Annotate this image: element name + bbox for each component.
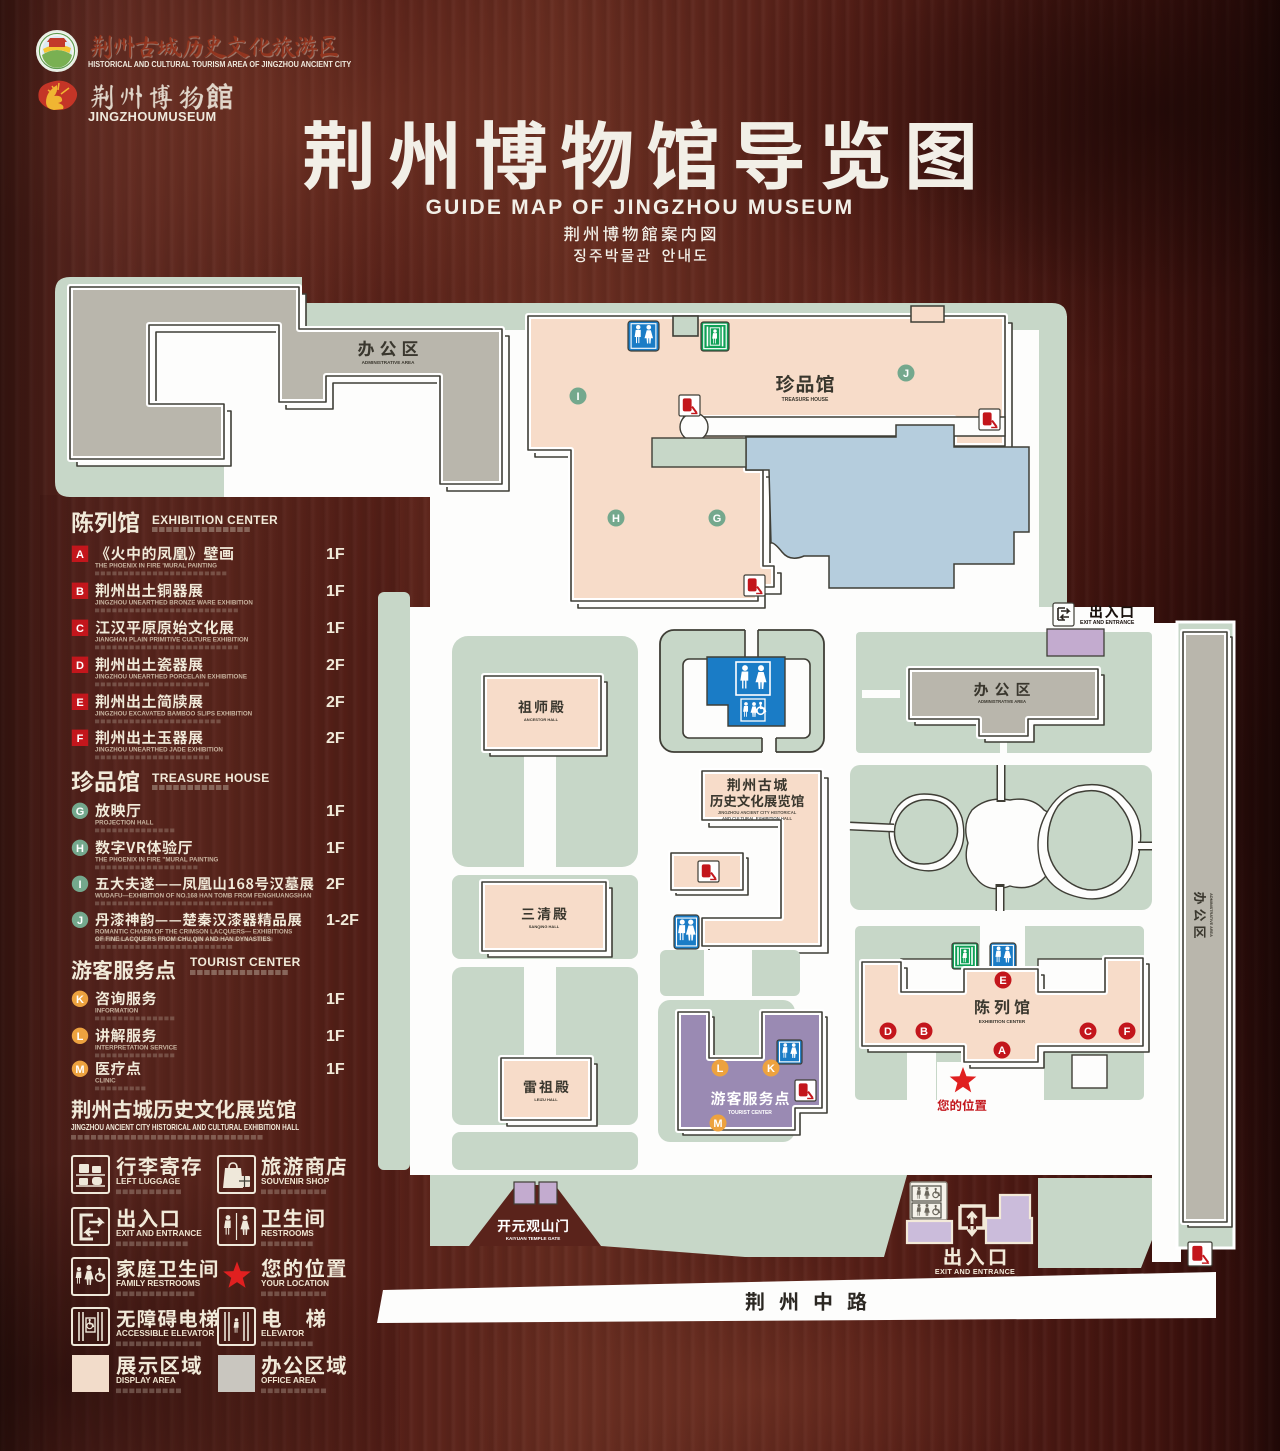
svg-text:JINGZHOU UNEARTHED JADE EXHIBI: JINGZHOU UNEARTHED JADE EXHIBITION <box>95 747 223 754</box>
svg-text:2F: 2F <box>326 694 345 711</box>
svg-text:1F: 1F <box>326 546 345 563</box>
svg-text:TREASURE HOUSE: TREASURE HOUSE <box>782 397 829 403</box>
svg-text:SOUVENIR SHOP: SOUVENIR SHOP <box>261 1177 330 1186</box>
svg-text:KAIYUAN TEMPLE GATE: KAIYUAN TEMPLE GATE <box>506 1236 561 1241</box>
svg-text:OFFICE AREA: OFFICE AREA <box>261 1376 316 1385</box>
svg-text:WUDAFU—EXHIBITION OF NO.168 HA: WUDAFU—EXHIBITION OF NO.168 HAN TOMB FRO… <box>95 893 312 900</box>
svg-text:F: F <box>77 733 84 745</box>
svg-text:C: C <box>1084 1026 1092 1038</box>
svg-text:2F: 2F <box>326 876 345 893</box>
svg-text:GUIDE MAP OF JINGZHOU MUSEUM: GUIDE MAP OF JINGZHOU MUSEUM <box>426 196 855 219</box>
svg-text:JINGZHOU UNEARTHED BRONZE WARE: JINGZHOU UNEARTHED BRONZE WARE EXHIBITIO… <box>95 600 253 607</box>
svg-text:AND CULTURAL EXHIBITION HALL: AND CULTURAL EXHIBITION HALL <box>722 816 793 821</box>
svg-text:JINGZHOUMUSEUM: JINGZHOUMUSEUM <box>88 109 217 124</box>
svg-text:TREASURE HOUSE: TREASURE HOUSE <box>152 771 270 785</box>
svg-text:ELEVATOR: ELEVATOR <box>261 1329 304 1338</box>
svg-text:YOUR LOCATION: YOUR LOCATION <box>261 1279 329 1288</box>
svg-text:ANCESTOR HALL: ANCESTOR HALL <box>524 717 559 722</box>
svg-text:EXHIBITION CENTER: EXHIBITION CENTER <box>152 513 278 527</box>
svg-text:2F: 2F <box>326 730 345 747</box>
svg-text:LEIZU HALL: LEIZU HALL <box>534 1097 558 1102</box>
svg-text:2F: 2F <box>326 657 345 674</box>
svg-text:RESTROOMS: RESTROOMS <box>261 1229 314 1238</box>
svg-text:JIANGHAN PLAIN PRIMITIVE CULTU: JIANGHAN PLAIN PRIMITIVE CULTURE EXHIBIT… <box>95 637 249 644</box>
svg-text:1F: 1F <box>326 620 345 637</box>
svg-text:1F: 1F <box>326 840 345 857</box>
svg-text:E: E <box>76 697 83 709</box>
svg-text:B: B <box>76 586 84 598</box>
svg-text:H: H <box>612 513 620 525</box>
svg-text:THE PHOENIX IN FIRE 'MURAL PAI: THE PHOENIX IN FIRE 'MURAL PAINTING <box>95 563 217 570</box>
svg-text:EXIT AND ENTRANCE: EXIT AND ENTRANCE <box>935 1267 1015 1276</box>
svg-text:G: G <box>713 513 722 525</box>
svg-text:EXHIBITION CENTER: EXHIBITION CENTER <box>979 1019 1026 1024</box>
svg-text:M: M <box>713 1118 722 1130</box>
svg-text:EXIT AND ENTRANCE: EXIT AND ENTRANCE <box>116 1229 202 1238</box>
svg-text:EXIT AND ENTRANCE: EXIT AND ENTRANCE <box>1080 620 1135 626</box>
svg-text:M: M <box>75 1064 84 1076</box>
svg-text:JINGZHOU EXCAVATED BAMBOO SLIP: JINGZHOU EXCAVATED BAMBOO SLIPS EXHIBITI… <box>95 711 253 718</box>
svg-text:B: B <box>920 1026 928 1038</box>
svg-text:K: K <box>767 1063 775 1075</box>
svg-text:I: I <box>576 391 579 403</box>
svg-text:JINGZHOU ANCIENT CITY HISTORIC: JINGZHOU ANCIENT CITY HISTORICAL AND CUL… <box>71 1122 300 1132</box>
svg-text:1F: 1F <box>326 1028 345 1045</box>
svg-text:TOURIST CENTER: TOURIST CENTER <box>728 1110 772 1116</box>
svg-text:ADMINISTRATIVE AREA: ADMINISTRATIVE AREA <box>362 360 416 365</box>
svg-text:H: H <box>76 843 84 855</box>
svg-text:SANQING HALL: SANQING HALL <box>529 924 560 929</box>
svg-text:1F: 1F <box>326 583 345 600</box>
svg-text:ACCESSIBLE ELEVATOR: ACCESSIBLE ELEVATOR <box>116 1329 214 1338</box>
svg-text:ADMINISTRATIVE AREA: ADMINISTRATIVE AREA <box>1209 893 1213 937</box>
svg-text:OF FINE LACQUERS FROM CHU,QIN: OF FINE LACQUERS FROM CHU,QIN AND HAN DY… <box>95 936 271 943</box>
svg-text:D: D <box>76 660 84 672</box>
svg-text:INTERPRETATION SERVICE: INTERPRETATION SERVICE <box>95 1045 177 1052</box>
svg-text:INFORMATION: INFORMATION <box>95 1008 139 1015</box>
svg-text:E: E <box>999 975 1006 987</box>
svg-text:I: I <box>78 879 81 891</box>
svg-text:TOURIST CENTER: TOURIST CENTER <box>190 955 301 969</box>
svg-text:1F: 1F <box>326 1061 345 1078</box>
svg-text:LEFT LUGGAGE: LEFT LUGGAGE <box>116 1177 181 1186</box>
svg-text:ROMANTIC CHARM OF THE CRIMSON: ROMANTIC CHARM OF THE CRIMSON LACQUERS— … <box>95 929 292 936</box>
svg-text:DISPLAY AREA: DISPLAY AREA <box>116 1376 176 1385</box>
svg-text:ADMINISTRATIVE AREA: ADMINISTRATIVE AREA <box>978 699 1026 704</box>
svg-text:K: K <box>76 994 84 1006</box>
svg-text:HISTORICAL AND CULTURAL TOURIS: HISTORICAL AND CULTURAL TOURISM AREA OF … <box>88 60 351 69</box>
svg-text:A: A <box>76 549 84 561</box>
svg-text:THE PHOENIX IN FIRE "MURAL PAI: THE PHOENIX IN FIRE "MURAL PAINTING <box>95 857 219 864</box>
svg-text:JINGZHOU ANCIENT CITY HISTORIC: JINGZHOU ANCIENT CITY HISTORICAL <box>718 810 797 815</box>
svg-text:D: D <box>884 1026 892 1038</box>
svg-text:C: C <box>76 623 84 635</box>
svg-text:1F: 1F <box>326 991 345 1008</box>
svg-text:JINGZHOU UNEARTHED PORCELAIN E: JINGZHOU UNEARTHED PORCELAIN EXHIBITIONE <box>95 674 247 681</box>
svg-text:G: G <box>76 806 85 818</box>
svg-text:CLINIC: CLINIC <box>95 1078 116 1085</box>
svg-text:J: J <box>77 915 83 927</box>
svg-text:1-2F: 1-2F <box>326 912 359 929</box>
svg-text:L: L <box>77 1031 84 1043</box>
svg-text:1F: 1F <box>326 803 345 820</box>
svg-text:L: L <box>717 1063 724 1075</box>
svg-text:F: F <box>1124 1026 1131 1038</box>
svg-text:PROJECTION HALL: PROJECTION HALL <box>95 820 154 827</box>
svg-text:FAMILY RESTROOMS: FAMILY RESTROOMS <box>116 1279 201 1288</box>
svg-text:A: A <box>998 1045 1006 1057</box>
svg-text:J: J <box>903 368 909 380</box>
